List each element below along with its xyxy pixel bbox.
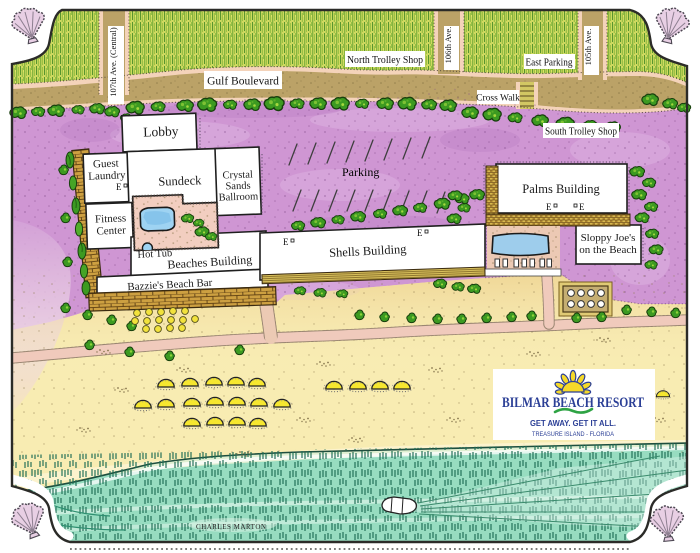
svg-text:E: E <box>283 237 289 247</box>
svg-text:Parking: Parking <box>342 165 379 179</box>
svg-text:Cross Walk: Cross Walk <box>476 94 520 104</box>
svg-text:Gulf Boulevard: Gulf Boulevard <box>207 76 279 88</box>
svg-text:Ballroom: Ballroom <box>218 191 258 203</box>
svg-text:GET AWAY. GET IT ALL.: GET AWAY. GET IT ALL. <box>530 419 616 428</box>
svg-text:Sundeck: Sundeck <box>158 173 202 189</box>
svg-text:South Trolley Shop: South Trolley Shop <box>545 127 617 138</box>
svg-text:CHARLES MARTON: CHARLES MARTON <box>196 523 266 531</box>
svg-text:Palms Building: Palms Building <box>522 182 600 196</box>
svg-text:107th Ave. (Central): 107th Ave. (Central) <box>108 27 118 97</box>
svg-text:E: E <box>116 182 122 192</box>
svg-text:105th Ave.: 105th Ave. <box>583 29 593 66</box>
svg-text:E: E <box>579 202 585 212</box>
svg-text:E: E <box>546 202 552 212</box>
svg-text:106th Ave.: 106th Ave. <box>443 27 453 64</box>
svg-text:Sloppy Joe's: Sloppy Joe's <box>581 232 636 244</box>
svg-text:Lobby: Lobby <box>143 123 179 139</box>
svg-text:Laundry: Laundry <box>88 169 126 183</box>
svg-text:E: E <box>417 228 423 238</box>
svg-text:BILMAR BEACH RESORT: BILMAR BEACH RESORT <box>502 395 644 411</box>
svg-text:Center: Center <box>96 224 126 237</box>
svg-text:TREASURE ISLAND - FLORIDA: TREASURE ISLAND - FLORIDA <box>532 431 614 438</box>
svg-text:North Trolley Shop: North Trolley Shop <box>347 55 423 66</box>
svg-text:on the Beach: on the Beach <box>579 244 637 256</box>
svg-text:East Parking: East Parking <box>526 58 573 69</box>
svg-text:Sands: Sands <box>225 181 250 193</box>
svg-text:Guest: Guest <box>93 157 119 170</box>
